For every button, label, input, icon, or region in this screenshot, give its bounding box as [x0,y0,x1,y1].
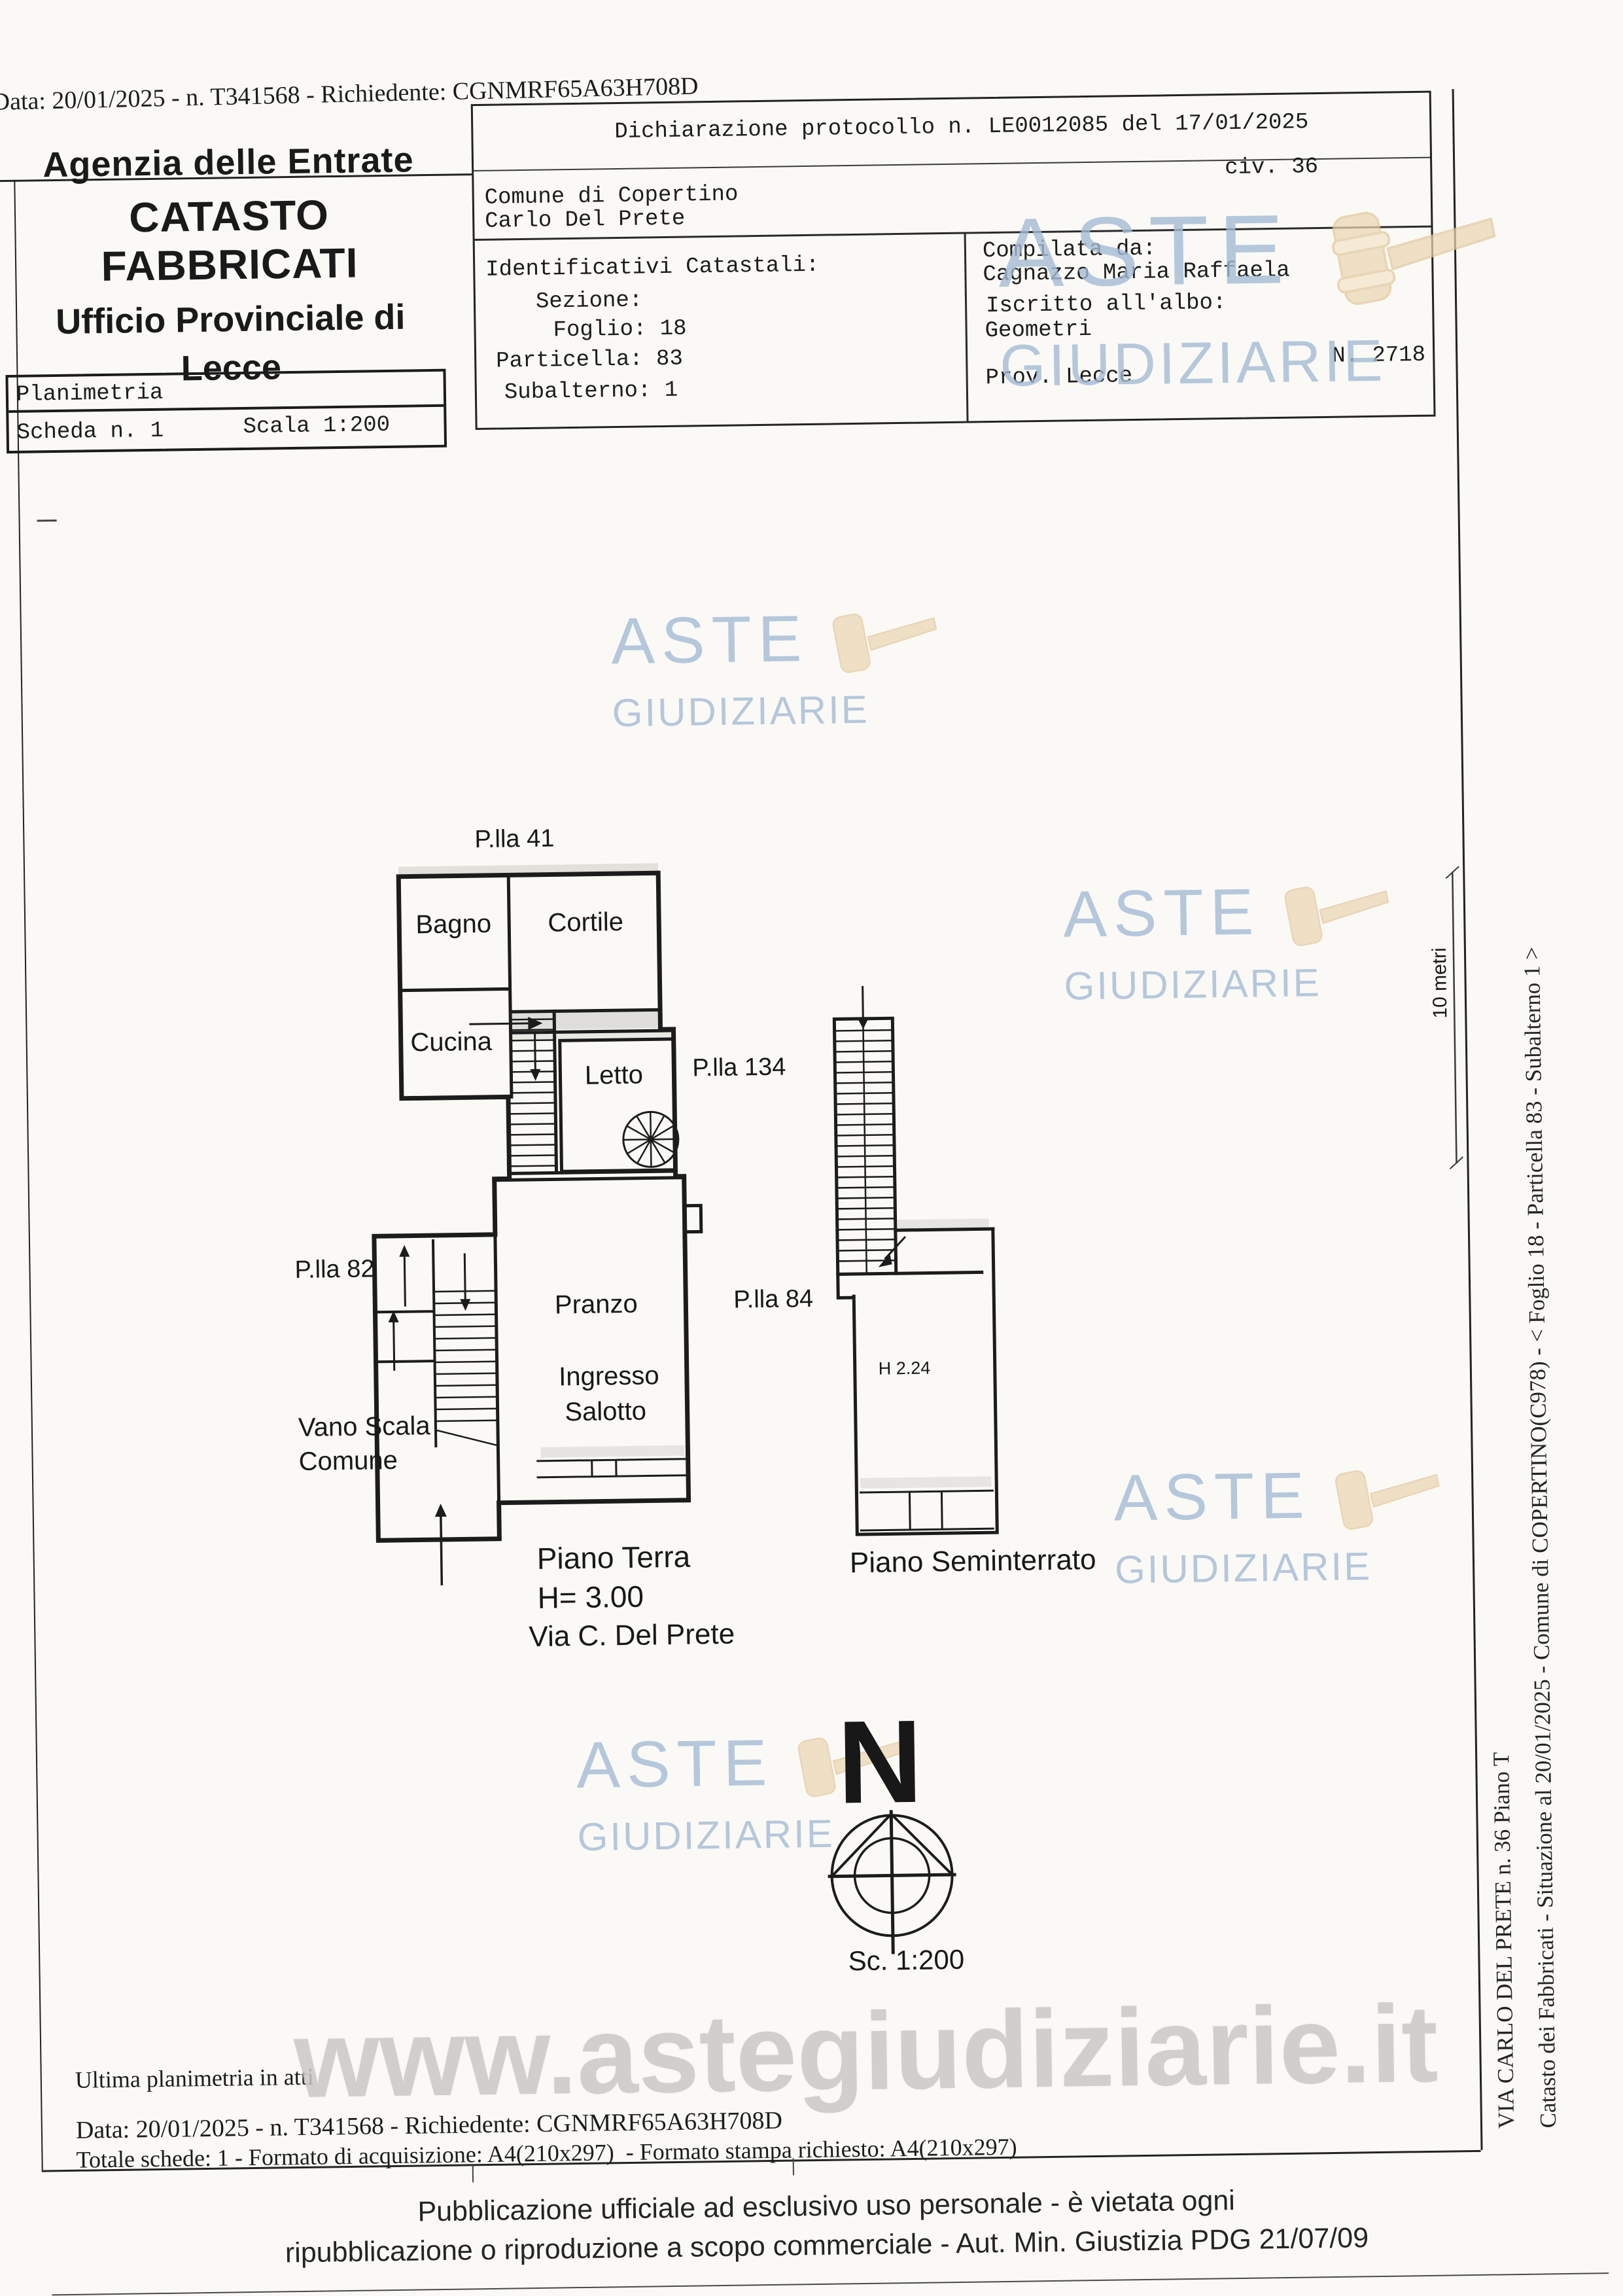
scan-shading [540,1445,684,1458]
agency-name: Agenzia delle Entrate [12,139,445,186]
particella-field: Particella: 83 [496,347,683,374]
gavel-icon [1305,206,1503,327]
planimetria-row: Planimetria [9,372,444,413]
identificativi-title: Identificativi Catastali: [485,253,820,283]
parcel-label-84: P.lla 84 [733,1285,813,1314]
room-label-comune: Comune [298,1446,398,1476]
planimetria-box: Planimetria Scheda n. 1 Scala 1:200 [5,369,447,453]
room-label-vano-scala: Vano Scala [298,1411,431,1442]
aste-giudiziarie-watermark: ASTE GIUDIZIARIE [998,206,1504,396]
room-label-cucina: Cucina [410,1027,493,1057]
up-arrow [394,1320,394,1371]
room-label-letto: Letto [585,1061,644,1090]
room-label-bagno: Bagno [415,910,491,940]
down-arrow [464,1253,465,1301]
footer-rule [52,2272,1609,2295]
room-label-ingresso: Ingresso [559,1361,659,1391]
up-arrowhead [399,1245,410,1257]
floor-plan-drawing: H 2.24 P.lla 41 Bagno Cortile Cucina Let… [270,802,1530,2062]
aste-giudiziarie-watermark: ASTE GIUDIZIARIE [611,610,942,733]
parcel-label-82: P.lla 82 [294,1255,374,1284]
basement-height-label: H 2.24 [879,1358,931,1378]
scan-shading [898,1218,989,1229]
floor-caption-height: H= 3.00 [537,1580,644,1615]
watermark-text: GIUDIZIARIE [1000,330,1504,396]
entry-arrow [469,1023,528,1024]
watermark-text: ASTE [611,612,809,668]
agency-header: Agenzia delle Entrate CATASTO FABBRICATI… [12,139,447,391]
basement-entry-arrow [863,986,864,1020]
basement-bottom-band [860,1491,993,1530]
foglio-field: Foglio: 18 [553,317,687,344]
intestatario-line: Carlo Del Prete [485,207,686,234]
scale-bar-label: 10 metri [1429,947,1452,1019]
civico-value: civ. 36 [1225,154,1318,181]
scan-shading [860,1476,991,1489]
planimetria-label: Planimetria [16,381,164,408]
street-caption: Via C. Del Prete [529,1618,735,1653]
catasto-title: CATASTO FABBRICATI [13,189,446,292]
compass-scale-label: Sc. 1:200 [848,1944,964,1976]
stair-treads [510,1019,555,1166]
sezione-field: Sezione: [536,288,643,314]
scheda-label: Scheda n. 1 [16,419,164,446]
floor-caption-seminterrato: Piano Seminterrato [850,1544,1096,1579]
scale-bar: 10 metri [1427,866,1463,1169]
up-arrow [404,1254,405,1307]
watermark-text: ASTE [998,209,1294,294]
up-arrowhead [435,1504,447,1517]
gavel-icon [816,610,941,687]
annex-stair-treads [435,1291,497,1446]
room-label-salotto: Salotto [565,1397,646,1427]
scala-label: Scala 1:200 [243,413,390,440]
declaration-column-divider [964,232,969,421]
paper-content: ASTE GIUDIZIARIE ASTE GIUDIZIARI [0,0,1623,2296]
office-line: Ufficio Provinciale di [14,296,447,343]
room-label-cortile: Cortile [548,908,623,938]
subalterno-field: Subalterno: 1 [504,378,678,406]
north-letter: N [837,1696,924,1829]
room-label-pranzo: Pranzo [555,1290,638,1320]
compass-vertical [891,1810,893,1954]
basement-entry-arrowhead [857,1017,869,1029]
window-band [538,1459,686,1477]
scanned-cadastral-sheet: ASTE GIUDIZIARIE ASTE GIUDIZIARI [0,0,1623,2296]
watermark-text: GIUDIZIARIE [612,689,941,733]
down-arrow [535,1031,536,1070]
parcel-label-41: P.lla 41 [474,824,554,853]
basement-corridor [896,1229,994,1273]
scale-bar-line [1452,872,1456,1163]
tick-mark [37,520,57,521]
frame-left-border [14,180,43,2170]
protocol-line: Dichiarazione protocollo n. LE0012085 de… [614,110,1308,145]
parcel-label-134: P.lla 134 [692,1053,786,1082]
up-arrow [441,1514,442,1585]
ultima-planimetria-line: Ultima planimetria in atti [75,2063,314,2094]
floor-caption-piano-terra: Piano Terra [536,1540,691,1576]
down-arrowhead [530,1069,540,1081]
comune-line: Comune di Copertino [484,182,738,210]
north-compass: N Sc. 1:200 [826,1695,965,1977]
down-arrowhead [460,1299,470,1311]
